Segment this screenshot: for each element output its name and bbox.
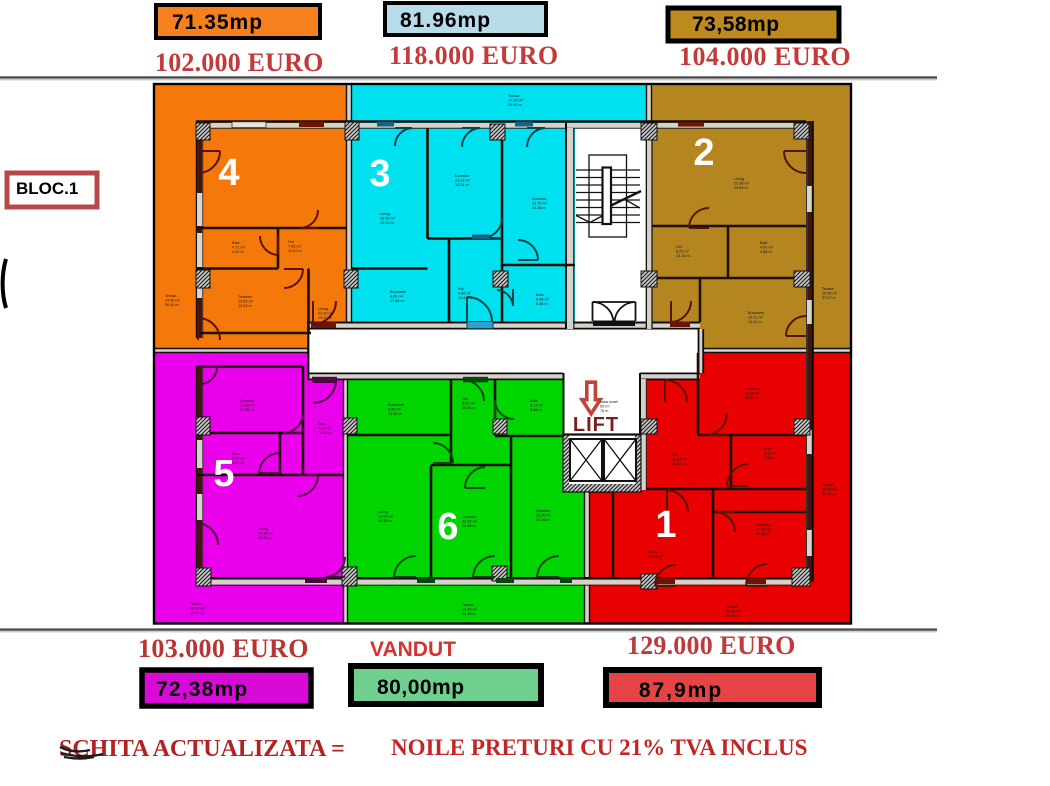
svg-text:81.96mp: 81.96mp [400, 9, 491, 32]
svg-text:LIFT: LIFT [573, 414, 619, 436]
svg-text:Dormitor13.55 m²14.53 m: Dormitor13.55 m²14.53 m [238, 295, 254, 308]
svg-text:4: 4 [218, 152, 239, 194]
svg-text:2: 2 [693, 132, 714, 174]
svg-text:Bucatarie12.21 m²14.21 m: Bucatarie12.21 m²14.21 m [748, 311, 764, 324]
svg-text:73,58mp: 73,58mp [692, 13, 780, 36]
svg-text:Dormitor13.24 m²13.24 m: Dormitor13.24 m²13.24 m [455, 174, 471, 187]
svg-text:72,38mp: 72,38mp [156, 678, 248, 701]
svg-text:71.35mp: 71.35mp [172, 11, 263, 34]
svg-text:Dormitor15.26 m²17.26 m: Dormitor15.26 m²17.26 m [536, 509, 552, 522]
svg-text:3: 3 [369, 153, 390, 195]
svg-text:VANDUT: VANDUT [370, 638, 456, 661]
svg-text:80,00mp: 80,00mp [377, 676, 465, 699]
svg-text:Dormitor14.88 m²15.88 m: Dormitor14.88 m²15.88 m [756, 523, 772, 536]
svg-text:SCHITA ACTUALIZATA =: SCHITA ACTUALIZATA = [59, 736, 345, 762]
svg-text:118.000 EURO: 118.000 EURO [389, 41, 558, 70]
svg-text:Dormitor12.88 m²13.88 m: Dormitor12.88 m²13.88 m [240, 399, 256, 412]
svg-text:87,9mp: 87,9mp [639, 679, 723, 702]
svg-text:6: 6 [437, 506, 458, 548]
svg-text:Dormitor12.28 m²12.56 m: Dormitor12.28 m²12.56 m [462, 515, 478, 528]
svg-text:129.000 EURO: 129.000 EURO [627, 631, 796, 660]
svg-text:Dormitor13.76 m²14.38 m: Dormitor13.76 m²14.38 m [532, 197, 548, 210]
svg-text:BLOC.1: BLOC.1 [16, 179, 78, 198]
svg-text:NOILE PRETURI CU 21% TVA INCLU: NOILE PRETURI CU 21% TVA INCLUS [391, 735, 807, 760]
svg-text:104.000 EURO: 104.000 EURO [679, 42, 851, 71]
svg-text:Dormitor12.58 m²13.52 m: Dormitor12.58 m²13.52 m [745, 387, 761, 400]
svg-text:1: 1 [655, 504, 676, 546]
svg-text:103.000 EURO: 103.000 EURO [138, 634, 309, 663]
svg-text:102.000 EURO: 102.000 EURO [155, 48, 324, 77]
